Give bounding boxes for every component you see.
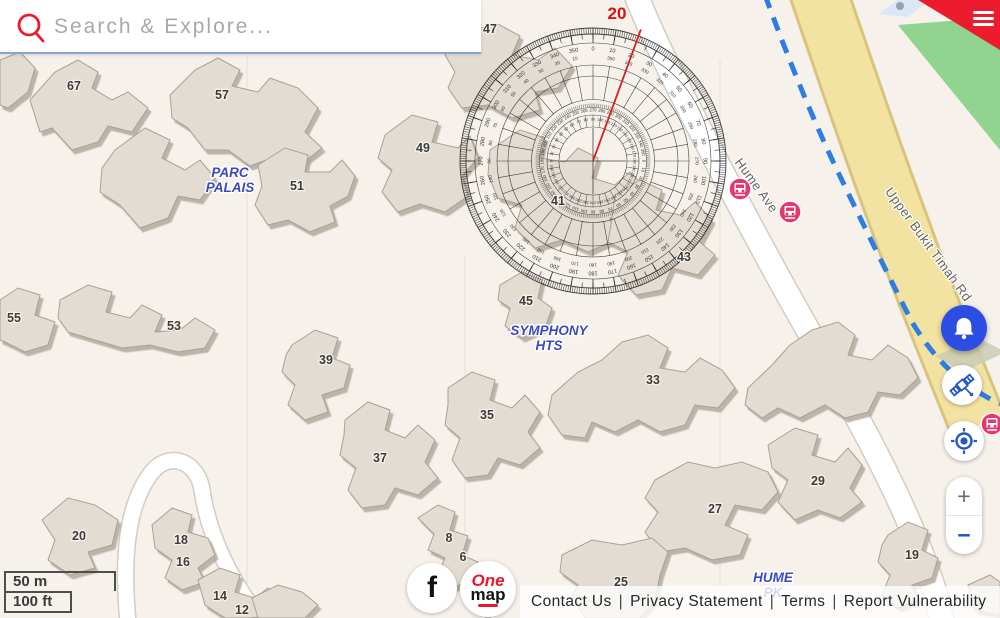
svg-text:10: 10 (550, 151, 555, 156)
footer-separator: | (612, 593, 630, 611)
building-label: 19 (905, 548, 919, 562)
building-label: 8 (446, 531, 453, 545)
bell-icon (951, 315, 977, 341)
svg-text:270: 270 (590, 108, 598, 113)
svg-text:180: 180 (588, 270, 597, 276)
footer-separator: | (763, 593, 781, 611)
onemap-logo-line2: map (471, 586, 506, 603)
zoom-out-button[interactable]: − (946, 516, 982, 554)
building-label: 55 (7, 311, 21, 325)
footer-link-terms[interactable]: Terms (781, 593, 825, 611)
satellite-icon (948, 371, 976, 399)
onemap-app: 0270901035028010020340290110303303001204… (0, 0, 1000, 618)
locate-me-button[interactable] (944, 421, 984, 461)
target-icon (949, 426, 979, 456)
measure-angle-label: 20 (608, 4, 627, 23)
svg-text:180: 180 (540, 157, 545, 165)
scale-control: 50 m 100 ft (4, 571, 116, 613)
pond-islet (896, 2, 904, 10)
building-label: 49 (416, 141, 430, 155)
footer-link-contact-us[interactable]: Contact Us (531, 593, 612, 611)
satellite-tools-button[interactable] (942, 365, 982, 405)
footer-link-report-vulnerability[interactable]: Report Vulnerability (844, 593, 987, 611)
notifications-button[interactable] (941, 305, 987, 351)
building-label: 45 (519, 294, 533, 308)
building-label: 6 (460, 550, 467, 564)
building-label: 53 (167, 319, 181, 333)
svg-text:90: 90 (591, 118, 595, 122)
building-label: 57 (215, 88, 229, 102)
svg-text:10: 10 (609, 48, 616, 55)
search-input[interactable] (52, 4, 406, 50)
svg-text:90: 90 (702, 158, 708, 164)
svg-text:180: 180 (589, 263, 597, 268)
area-label: PARCPALAIS (206, 165, 255, 195)
building-label: 35 (480, 408, 494, 422)
onemap-logo-swoosh (478, 604, 498, 607)
zoom-control: + − (946, 477, 982, 554)
search-icon[interactable] (14, 11, 48, 45)
zoom-in-button[interactable]: + (946, 477, 982, 516)
building-label: 67 (67, 79, 81, 93)
svg-text:80: 80 (699, 138, 706, 145)
building-label: 16 (176, 555, 190, 569)
facebook-glyph: f (427, 571, 437, 605)
building-label: 33 (646, 373, 660, 387)
svg-text:270: 270 (479, 156, 485, 165)
footer-bar: Contact Us|Privacy Statement|Terms|Repor… (520, 586, 1000, 618)
footer-separator: | (825, 593, 843, 611)
scale-imperial: 100 ft (6, 591, 72, 613)
onemap-logo[interactable]: One map (460, 561, 516, 617)
bus-stop-icon[interactable] (779, 201, 801, 223)
svg-text:90: 90 (590, 210, 595, 215)
hamburger-icon (973, 11, 994, 29)
building-label: 20 (72, 529, 86, 543)
svg-text:80: 80 (583, 118, 588, 123)
map-canvas[interactable]: 0270901035028010020340290110303303001204… (0, 0, 1000, 618)
building-label: 41 (551, 194, 565, 208)
svg-text:0: 0 (550, 160, 554, 162)
building-label: 51 (290, 179, 304, 193)
svg-text:180: 180 (633, 158, 637, 164)
building-label: 29 (811, 474, 825, 488)
facebook-button[interactable]: f (407, 563, 457, 613)
building-label: 39 (319, 353, 333, 367)
building-label: 37 (373, 451, 387, 465)
svg-text:270: 270 (590, 201, 596, 205)
bus-stop-icon[interactable] (981, 413, 1000, 435)
svg-text:0: 0 (591, 47, 594, 53)
building-label: 43 (677, 250, 691, 264)
footer-link-privacy-statement[interactable]: Privacy Statement (630, 593, 763, 611)
building-label: 12 (235, 603, 249, 617)
building-label: 27 (708, 502, 722, 516)
svg-text:90: 90 (487, 158, 492, 164)
scale-metric: 50 m (6, 571, 116, 591)
svg-text:270: 270 (695, 157, 700, 165)
building-label: 14 (213, 589, 227, 603)
search-bar (0, 0, 481, 54)
building-label: 47 (483, 22, 497, 36)
building-label: 18 (174, 533, 188, 547)
